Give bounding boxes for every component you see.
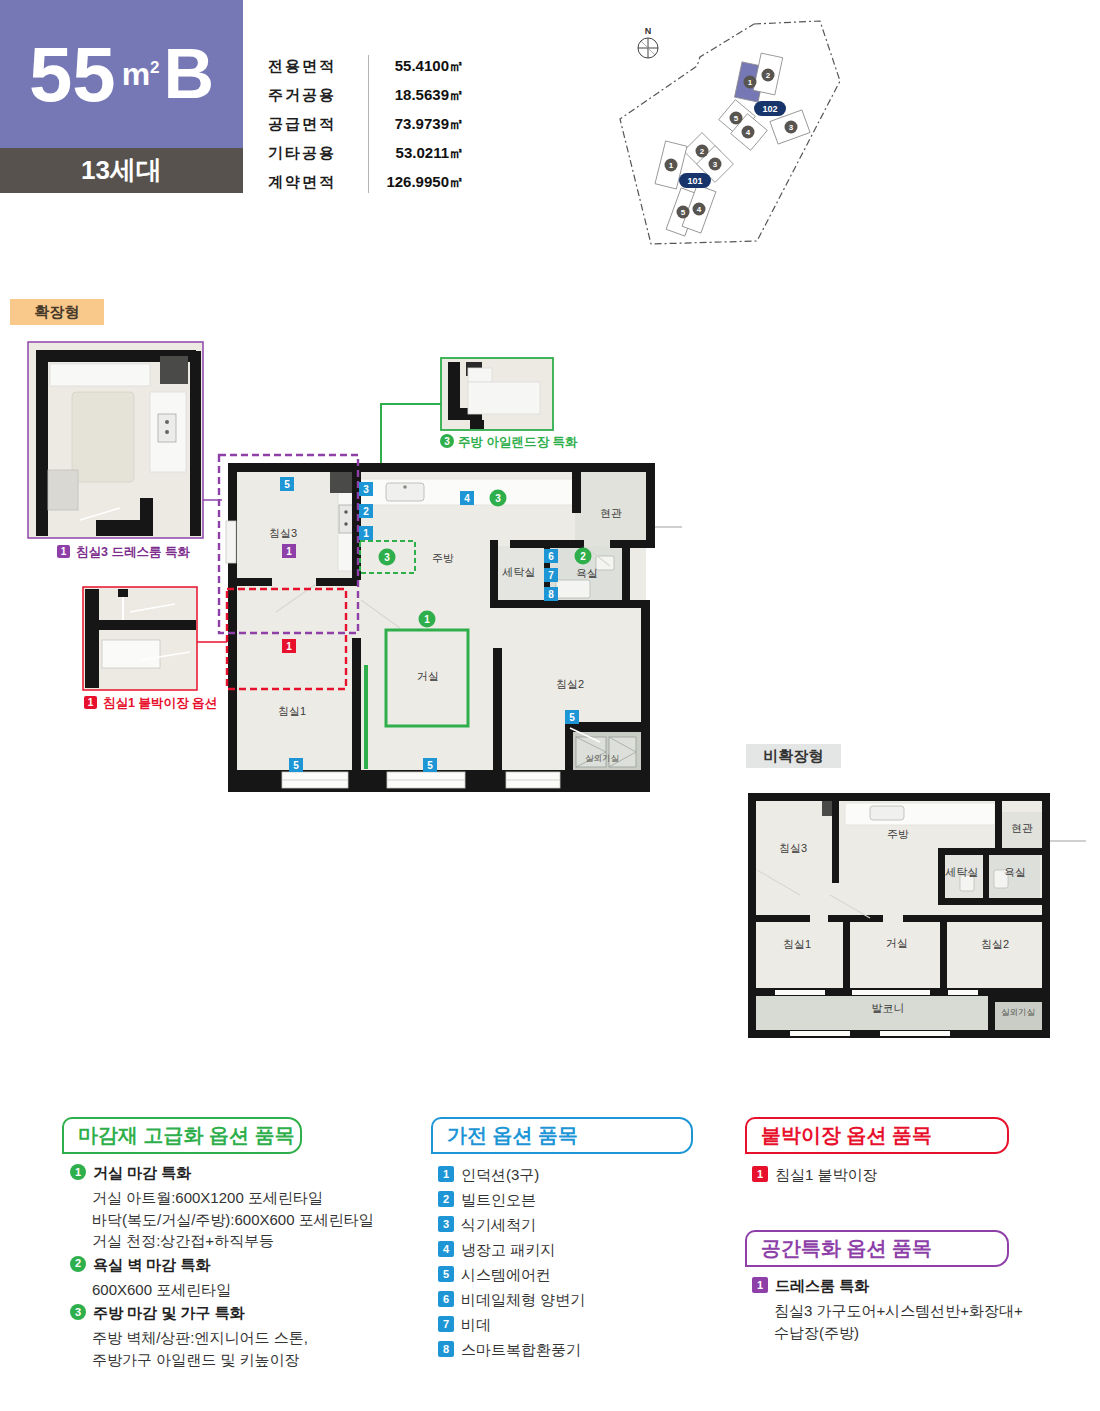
list-item: 3 주방 마감 및 가구 특화 [70,1302,380,1323]
num-square: 5 [438,1266,454,1282]
list-item: 1 거실 마감 특화 [70,1162,380,1183]
list-subitem: 거실 아트월:600X1200 포세린타일 [92,1187,380,1209]
table-row: 전용면적 55.4100㎡ [268,52,464,81]
list-subitem: 주방 벽체/상판:엔지니어드 스톤, [92,1327,380,1349]
builtin-options-list: 1 침실1 붙박이장 [752,1164,1012,1189]
svg-text:거실: 거실 [417,670,439,682]
svg-text:6: 6 [548,551,554,562]
appliance-options-title: 가전 옵션 품목 [431,1117,693,1154]
north-label: N [645,26,652,36]
num-square: 1 [438,1166,454,1182]
list-item: 1 드레스룸 특화 [752,1275,1042,1296]
svg-text:1: 1 [748,78,753,87]
num-square: 2 [438,1191,454,1207]
svg-text:거실: 거실 [886,937,908,949]
area-table: 전용면적 55.4100㎡ 주거공용 18.5639㎡ 공급면적 73.9739… [268,52,464,197]
list-subitem: 주방가구 아일랜드 및 키높이장 [92,1349,380,1371]
space-options-list: 1 드레스룸 특화 침실3 가구도어+시스템선반+화장대+ 수납장(주방) [752,1275,1042,1343]
list-item: 5시스템에어컨 [438,1264,698,1285]
num-square: 3 [438,1216,454,1232]
svg-text:현관: 현관 [600,507,622,519]
num-square: 1 [752,1166,768,1182]
svg-text:세탁실: 세탁실 [502,566,536,578]
inset-dressroom [28,342,203,538]
svg-text:7: 7 [548,570,554,581]
num-circle: 1 [70,1164,86,1180]
svg-text:8: 8 [548,589,554,600]
finish-options-list: 1 거실 마감 특화 거실 아트월:600X1200 포세린타일 바닥(복도/거… [70,1162,380,1370]
table-row: 주거공용 18.5639㎡ [268,81,464,110]
svg-text:1: 1 [669,161,674,170]
svg-text:2: 2 [580,551,586,562]
svg-text:침실2: 침실2 [981,938,1009,950]
svg-text:1: 1 [424,614,430,625]
svg-text:실외기실: 실외기실 [1001,1007,1035,1017]
svg-text:주방: 주방 [432,552,454,564]
non-expanded-floor-plan: 침실3 주방 현관 세탁실 욕실 침실1 거실 침실2 발코니 실외기실 [740,790,1092,1048]
num-square: 7 [438,1316,454,1332]
svg-text:4: 4 [746,128,751,137]
svg-text:침실3 드레스룸 특화: 침실3 드레스룸 특화 [76,545,190,559]
households-badge: 13세대 [0,148,243,193]
list-item: 2빌트인오븐 [438,1189,698,1210]
num-square: 4 [438,1241,454,1257]
list-subitem: 바닥(복도/거실/주방):600X600 포세린타일 [92,1209,380,1231]
svg-text:4: 4 [464,493,470,504]
unit-m: m2 [122,56,160,93]
svg-text:1: 1 [363,528,369,539]
svg-text:1: 1 [286,641,292,652]
inset-island-caption: 3 주방 아일랜드장 특화 [440,434,578,449]
svg-text:침실1 붙박이장 옵션: 침실1 붙박이장 옵션 [103,696,217,710]
svg-text:현관: 현관 [1011,822,1033,834]
svg-text:1: 1 [61,546,67,557]
finish-options-title: 마감재 고급화 옵션 품목 [62,1117,302,1154]
inset-island [441,358,553,430]
svg-text:2: 2 [363,506,369,517]
svg-text:실외기실: 실외기실 [585,753,619,763]
builtin-options-title: 붙박이장 옵션 품목 [745,1117,1009,1154]
list-subitem: 600X600 포세린타일 [92,1279,380,1301]
svg-text:3: 3 [789,123,794,132]
svg-text:침실1: 침실1 [278,705,306,717]
list-item: 3식기세척기 [438,1214,698,1235]
svg-text:102: 102 [762,104,777,114]
svg-text:1: 1 [286,546,292,557]
svg-text:1: 1 [88,697,94,708]
site-plan: N 1 2 5 4 3 1 2 3 5 4 102 [615,15,1065,255]
non-expanded-type-badge: 비확장형 [746,744,841,768]
svg-text:2: 2 [766,71,771,80]
inset-closet [83,587,197,690]
expanded-floor-plan: 1 침실3 드레스룸 특화 1 침실1 붙박이장 옵션 [20,335,690,800]
svg-text:욕실: 욕실 [576,567,598,579]
appliance-options-list: 1인덕션(3구) 2빌트인오븐 3식기세척기 4냉장고 패키지 5시스템에어컨 … [438,1164,698,1364]
svg-text:주방 아일랜드장 특화: 주방 아일랜드장 특화 [458,435,578,449]
expanded-type-badge: 확장형 [10,299,104,325]
brochure-page: 55m2B 13세대 전용면적 55.4100㎡ 주거공용 18.5639㎡ 공… [0,0,1100,1411]
list-item: 6비데일체형 양변기 [438,1289,698,1310]
svg-text:침실2: 침실2 [556,678,584,690]
table-divider [368,55,369,193]
north-compass: N [638,26,658,58]
unit-size: 55 [29,35,116,113]
list-subitem: 거실 천정:상간접+하직부등 [92,1230,380,1252]
list-item: 2 욕실 벽 마감 특화 [70,1254,380,1275]
art-wall-line [364,665,368,769]
table-row: 계약면적 126.9950㎡ [268,168,464,197]
list-item: 8스마트복합환풍기 [438,1339,698,1360]
svg-text:3: 3 [495,493,501,504]
svg-text:101: 101 [687,176,702,186]
svg-text:5: 5 [284,479,290,490]
svg-text:세탁실: 세탁실 [945,866,979,878]
num-circle: 2 [70,1256,86,1272]
svg-text:5: 5 [427,760,433,771]
svg-text:3: 3 [713,160,718,169]
svg-text:5: 5 [734,114,739,123]
svg-text:발코니: 발코니 [872,1002,905,1014]
list-item: 7비데 [438,1314,698,1335]
svg-text:침실3: 침실3 [779,842,807,854]
svg-text:5: 5 [569,712,575,723]
svg-text:5: 5 [681,208,686,217]
table-row: 기타공용 53.0211㎡ [268,139,464,168]
table-row: 공급면적 73.9739㎡ [268,110,464,139]
num-square: 8 [438,1341,454,1357]
num-square: 6 [438,1291,454,1307]
list-item: 1 침실1 붙박이장 [752,1164,1012,1185]
svg-text:2: 2 [700,147,705,156]
list-item: 4냉장고 패키지 [438,1239,698,1260]
svg-text:5: 5 [293,760,299,771]
svg-text:침실3: 침실3 [269,527,297,539]
list-subitem: 수납장(주방) [774,1322,1042,1344]
svg-text:3: 3 [444,436,450,447]
svg-text:4: 4 [697,205,702,214]
num-circle: 3 [70,1304,86,1320]
inset-dressroom-caption: 1 침실3 드레스룸 특화 [57,545,190,559]
svg-text:주방: 주방 [887,828,909,840]
svg-text:3: 3 [363,484,369,495]
svg-text:욕실: 욕실 [1004,866,1026,878]
svg-text:침실1: 침실1 [783,938,811,950]
unit-title-block: 55m2B [0,0,243,148]
list-item: 1인덕션(3구) [438,1164,698,1185]
inset-closet-caption: 1 침실1 붙박이장 옵션 [84,696,217,710]
svg-text:3: 3 [384,552,390,563]
space-options-title: 공간특화 옵션 품목 [745,1230,1009,1267]
num-square: 1 [752,1277,768,1293]
unit-type: B [164,39,215,109]
list-subitem: 침실3 가구도어+시스템선반+화장대+ [774,1300,1042,1322]
